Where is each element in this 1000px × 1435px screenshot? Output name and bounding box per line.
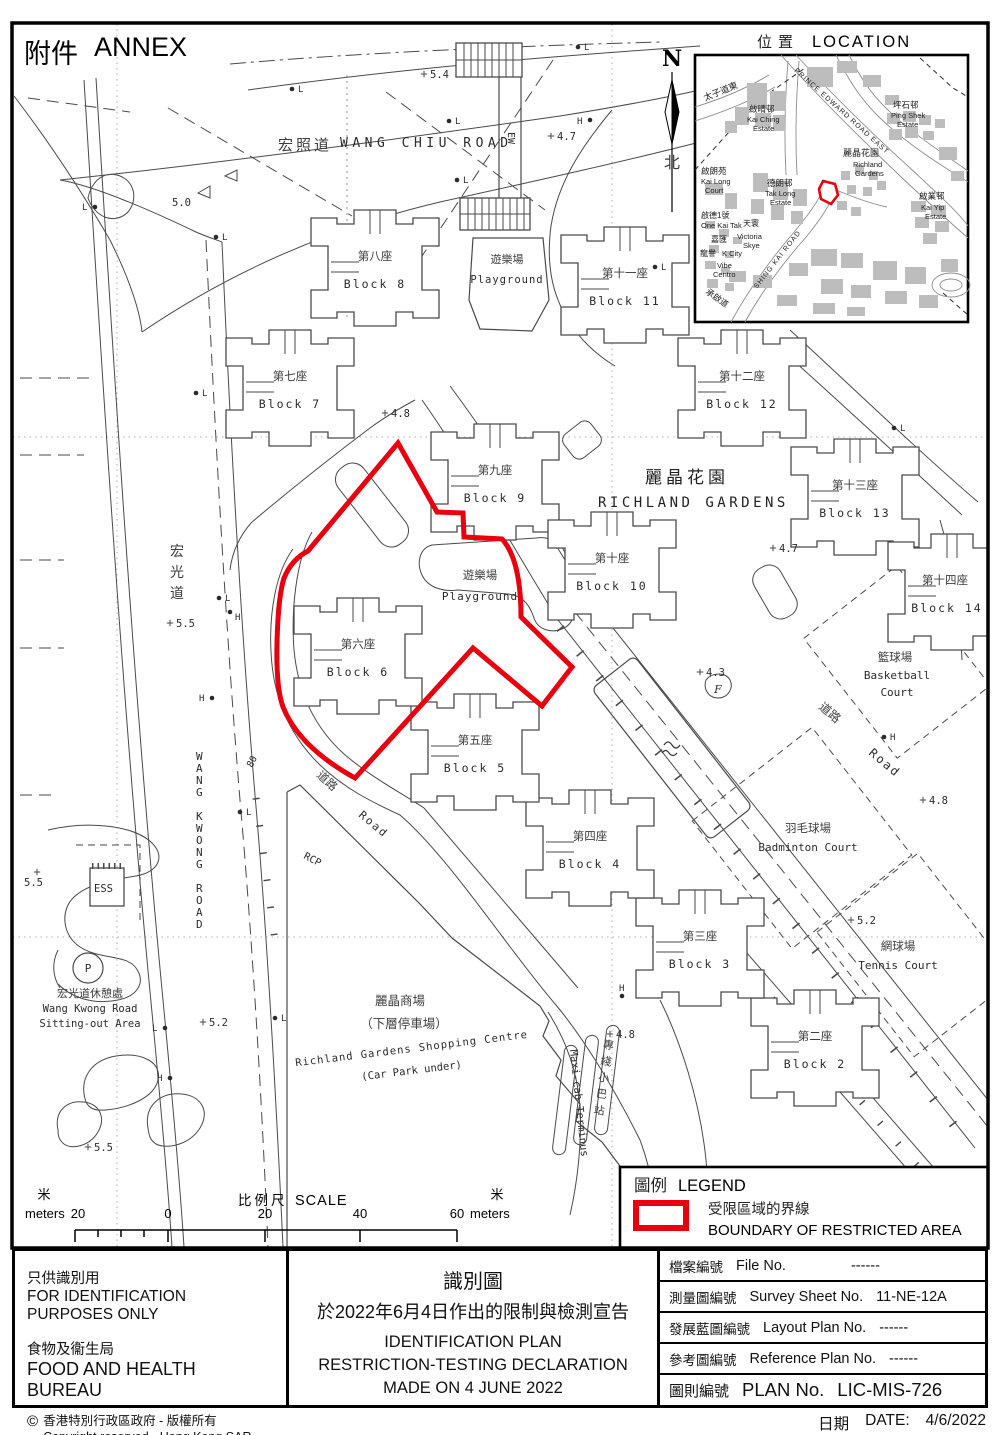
plan-title-en: IDENTIFICATION PLAN xyxy=(289,1333,657,1352)
plan-subtitle-en: RESTRICTION-TESTING DECLARATION xyxy=(289,1356,657,1375)
block-8-label-en: Block 8 xyxy=(344,277,406,291)
row-label-en: PLAN No. xyxy=(742,1379,824,1401)
plan-title-zh: 識別圖 xyxy=(289,1265,657,1294)
svg-text:L: L xyxy=(455,117,460,127)
svg-text:L: L xyxy=(584,43,589,53)
block-11-label-en: Block 11 xyxy=(589,294,660,308)
inset-label: 天寰 xyxy=(743,218,759,228)
date-value: 4/6/2022 xyxy=(926,1412,986,1434)
scale-meters-left: meters xyxy=(25,1206,65,1221)
svg-text:H: H xyxy=(235,613,240,623)
inset-label: Centro xyxy=(713,270,736,279)
badminton-label-en: Badminton Court xyxy=(758,841,857,854)
block-13-label-en: Block 13 xyxy=(819,506,890,520)
spot-height: 5.0 xyxy=(172,197,191,209)
for-identification-en: FOR IDENTIFICATION PURPOSES ONLY xyxy=(27,1288,274,1324)
spot-height: 5.2 xyxy=(209,1017,228,1029)
spot-height: 4.8 xyxy=(391,408,410,420)
row-value: 11-NE-12A xyxy=(876,1289,947,1305)
legend: 圖例 LEGEND 受限區域的界線 BOUNDARY OF RESTRICTED… xyxy=(620,1167,988,1248)
row-label-en: File No. xyxy=(736,1258,786,1274)
inset-title-en: LOCATION xyxy=(812,33,911,51)
scale-meters-right: meters xyxy=(470,1206,510,1221)
svg-text:H: H xyxy=(577,117,582,127)
for-identification-zh: 只供識別用 xyxy=(27,1267,274,1288)
block-13-label-zh: 第十三座 xyxy=(832,478,878,492)
block-10-label-zh: 第十座 xyxy=(595,551,630,565)
block-11-label-zh: 第十一座 xyxy=(602,266,648,280)
tennis-label-en: Tennis Court xyxy=(858,959,937,972)
survey-map: 5.4 4.7 5.0 4.8 4.7 4.3 4.8 5.5 5.5 5.2 … xyxy=(0,0,1000,1435)
basketball-label-zh: 籃球場 xyxy=(878,650,913,664)
scale-bar-ruler xyxy=(75,1230,457,1242)
playground-north-label-en: Playground xyxy=(470,274,543,286)
wang-chiu-road-label-en: WANG CHIU ROAD xyxy=(340,136,513,151)
estate-name-zh: 麗晶花園 xyxy=(645,468,729,487)
block-4-label-zh: 第四座 xyxy=(573,829,608,843)
copyright-en: Copyright reserved - Hong Kong SAR Gover… xyxy=(43,1430,251,1435)
plan-subtitle-zh: 於2022年6月4日作出的限制與檢測宣告 xyxy=(289,1298,657,1324)
block-12-label-en: Block 12 xyxy=(706,397,777,411)
f-label: F xyxy=(713,683,722,696)
annex-title-zh: 附件 xyxy=(24,32,78,71)
inset-label: Richland xyxy=(853,160,882,169)
svg-text:L: L xyxy=(225,594,230,604)
inset-label: Estate xyxy=(753,124,774,133)
inset-label: Kai Yip xyxy=(921,203,944,212)
svg-text:L: L xyxy=(298,85,303,95)
scale-tick-label: 0 xyxy=(164,1206,171,1221)
block-3-label-en: Block 3 xyxy=(669,957,731,971)
block-6-label-en: Block 6 xyxy=(327,665,389,679)
svg-text:L: L xyxy=(661,263,666,273)
parking-label: P xyxy=(85,962,92,975)
inset-label: Tak Long xyxy=(765,189,795,198)
sitting-out-area xyxy=(48,825,204,1147)
playground-north-label-zh: 遊樂場 xyxy=(491,252,524,266)
bureau-name-zh: 食物及衞生局 xyxy=(27,1338,274,1359)
badminton-label-zh: 羽毛球場 xyxy=(785,821,831,835)
row-label-zh: 檔案編號 xyxy=(669,1256,723,1276)
svg-text:L: L xyxy=(281,1014,286,1024)
spot-height: 4.3 xyxy=(706,667,725,679)
row-value: LIC-MIS-726 xyxy=(837,1379,942,1401)
svg-text:L: L xyxy=(82,203,87,213)
north-zh-label: 北 xyxy=(664,154,680,172)
location-inset: 位置 LOCATION xyxy=(695,33,970,322)
spot-height: 4.7 xyxy=(779,543,798,555)
rcp-label: RCP xyxy=(302,851,323,869)
inset-label: Court xyxy=(705,186,724,195)
scale-m-zh-right: 米 xyxy=(490,1187,503,1202)
chainage-label: 80 xyxy=(245,754,260,770)
playground-label-zh: 遊樂場 xyxy=(463,568,498,582)
block-4-label-en: Block 4 xyxy=(559,857,621,871)
footbridge-ew-label: EW xyxy=(505,132,516,145)
row-label-zh: 圖則編號 xyxy=(669,1380,729,1401)
inset-label: 嘉匯 xyxy=(711,234,727,244)
tennis-label-zh: 網球場 xyxy=(881,939,916,953)
spot-height: 5.4 xyxy=(430,69,449,81)
inset-label: Skye xyxy=(743,241,760,250)
ess-label: ESS xyxy=(94,883,113,895)
identification-plan-page: 5.4 4.7 5.0 4.8 4.7 4.3 4.8 5.5 5.5 5.2 … xyxy=(0,0,1000,1435)
layout-plan-row: 發展藍圖編號 Layout Plan No. ------ xyxy=(660,1313,985,1344)
inset-label: 啟朗苑 xyxy=(701,166,727,176)
block-2-label-en: Block 2 xyxy=(784,1057,846,1071)
inset-label: 啟晴邨 xyxy=(749,104,775,114)
shopping-carpark-label-zh: （下層停車場） xyxy=(360,1016,448,1031)
block-9-label-zh: 第九座 xyxy=(478,463,513,477)
block-12-label-zh: 第十二座 xyxy=(719,369,765,383)
inset-label: Victoria xyxy=(737,232,763,241)
basketball-label-en: Court xyxy=(880,686,913,699)
shopping-centre-label-zh: 麗晶商場 xyxy=(375,993,425,1008)
inset-label: Gardens xyxy=(855,169,884,178)
date-label-zh: 日期 xyxy=(818,1412,849,1434)
spot-height: 5.5 xyxy=(24,877,43,889)
road-label-zh: 道路 xyxy=(816,699,844,726)
row-label-en: Survey Sheet No. xyxy=(750,1289,864,1305)
legend-item-en: BOUNDARY OF RESTRICTED AREA xyxy=(708,1222,962,1239)
svg-text:H: H xyxy=(199,694,204,704)
file-no-row: 檔案編號 File No. ------ xyxy=(660,1251,985,1282)
svg-text:L: L xyxy=(222,233,227,243)
copyright-zh: 香港特別行政區政府 - 版權所有 xyxy=(43,1414,217,1428)
wang-chiu-road-label-zh: 宏照道 xyxy=(278,137,332,154)
svg-text:H: H xyxy=(619,984,624,994)
block-10-label-en: Block 10 xyxy=(576,579,647,593)
annex-title: 附件 ANNEX xyxy=(24,32,187,71)
row-label-zh: 測量圖編號 xyxy=(669,1287,737,1307)
identification-note-panel: 只供識別用 FOR IDENTIFICATION PURPOSES ONLY 食… xyxy=(12,1248,289,1408)
inset-title-zh: 位置 xyxy=(757,34,799,51)
sitting-out-label-zh: 宏光道休憩處 xyxy=(57,986,123,1000)
shopping-carpark-label-en: (Car Park under) xyxy=(361,1059,463,1083)
estate-name-en: RICHLAND GARDENS xyxy=(598,495,789,511)
inset-label: 啟德1號 xyxy=(701,210,729,220)
block-7-label-zh: 第七座 xyxy=(273,369,308,383)
scale-tick-label: 20 xyxy=(71,1206,85,1221)
inset-label: Ping Shek xyxy=(891,111,925,120)
spot-height: 4.7 xyxy=(557,131,576,143)
row-label-zh: 參考圖編號 xyxy=(669,1349,737,1369)
maxicab-label-en: Maxi-cab Terminus xyxy=(567,1049,590,1157)
sitting-out-label-en: Sitting-out Area xyxy=(39,1018,140,1030)
date-label-en: DATE: xyxy=(865,1412,910,1434)
svg-text:H: H xyxy=(157,1074,162,1084)
bureau-name-en: FOOD AND HEALTH BUREAU xyxy=(27,1359,274,1401)
inset-label: Estate xyxy=(897,120,918,129)
copyright-icon: © xyxy=(27,1413,38,1430)
legend-item-zh: 受限區域的界線 xyxy=(708,1201,810,1218)
north-arrow: N 北 xyxy=(662,46,682,212)
block-5-label-en: Block 5 xyxy=(444,761,506,775)
inset-label: One Kai Tak xyxy=(701,221,742,230)
inset-label: 坪石邨 xyxy=(893,100,919,110)
sitting-out-label-en: Wang Kwong Road xyxy=(43,1003,138,1015)
shopping-centre-label-en: Richland Gardens Shopping Centre xyxy=(295,1029,529,1069)
plan-date-en: MADE ON 4 JUNE 2022 xyxy=(289,1379,657,1398)
block-6-label-zh: 第六座 xyxy=(341,637,376,651)
scale-label-en: SCALE xyxy=(295,1193,348,1209)
block-5-label-zh: 第五座 xyxy=(458,733,493,747)
block-2-label-zh: 第二座 xyxy=(798,1029,833,1043)
spot-height: 4.8 xyxy=(616,1029,635,1041)
row-label-en: Layout Plan No. xyxy=(763,1320,866,1336)
north-n-label: N xyxy=(662,46,682,72)
block-3-label-zh: 第三座 xyxy=(683,929,718,943)
inset-label: 啟業邨 xyxy=(919,191,945,201)
row-value: ------ xyxy=(879,1320,908,1336)
svg-text:L: L xyxy=(152,1024,157,1034)
spot-height: 5.5 xyxy=(94,1142,113,1154)
scale-tick-label: 60 xyxy=(450,1206,464,1221)
road-label-en: Road xyxy=(866,746,903,780)
inset-label: 龍譽 xyxy=(700,248,716,258)
block-14-label-zh: 第十四座 xyxy=(922,573,968,587)
inset-site-marker xyxy=(819,181,838,204)
basketball-label-en: Basketball xyxy=(864,669,930,682)
inset-label: Estate xyxy=(770,198,791,207)
playground-label-en: Playground xyxy=(442,590,518,603)
wang-kwong-road-label-zh: 宏光道 xyxy=(170,543,184,601)
svg-text:L: L xyxy=(202,389,207,399)
row-value: ------ xyxy=(889,1351,918,1367)
date-line: 日期 DATE: 4/6/2022 xyxy=(818,1412,986,1434)
plan-title-panel: 識別圖 於2022年6月4日作出的限制與檢測宣告 IDENTIFICATION … xyxy=(286,1248,660,1408)
inset-label: 麗晶花園 xyxy=(843,147,879,158)
road-label-en: Road xyxy=(356,808,391,840)
block-8-label-zh: 第八座 xyxy=(358,249,393,263)
maxicab-label-zh: 專綫小巴站 xyxy=(593,1038,615,1118)
annex-title-en: ANNEX xyxy=(94,32,187,71)
inset-label: Estate xyxy=(925,212,946,221)
row-value: ------ xyxy=(851,1258,880,1274)
plan-reference-panel: 檔案編號 File No. ------ 測量圖編號 Survey Sheet … xyxy=(657,1248,988,1408)
swimmer-icon xyxy=(662,742,680,756)
svg-text:L: L xyxy=(246,808,251,818)
scale-tick-label: 40 xyxy=(353,1206,367,1221)
inset-label: Kai Ching xyxy=(747,115,780,124)
legend-title-zh: 圖例 xyxy=(634,1176,667,1195)
block-7-label-en: Block 7 xyxy=(259,397,321,411)
legend-title-en: LEGEND xyxy=(678,1177,746,1195)
plan-no-row: 圖則編號 PLAN No. LIC-MIS-726 xyxy=(660,1375,985,1405)
scale-tick-label: 20 xyxy=(258,1206,272,1221)
svg-text:H: H xyxy=(890,733,895,743)
inset-label: 德朗邨 xyxy=(767,178,793,188)
copyright: © 香港特別行政區政府 - 版權所有 Copyright reserved - … xyxy=(27,1413,274,1435)
row-label-en: Reference Plan No. xyxy=(750,1351,877,1367)
scale-m-zh-left: 米 xyxy=(37,1187,50,1202)
block-9-label-en: Block 9 xyxy=(464,491,526,505)
reference-plan-row: 參考圖編號 Reference Plan No. ------ xyxy=(660,1344,985,1375)
wang-kwong-road-label-en: WANG KWONG ROAD xyxy=(196,750,203,931)
block-14-label-en: Block 14 xyxy=(911,601,982,615)
spot-height: 5.2 xyxy=(857,915,876,927)
survey-sheet-row: 測量圖編號 Survey Sheet No. 11-NE-12A xyxy=(660,1282,985,1313)
svg-text:L: L xyxy=(463,176,468,186)
inset-label: K City xyxy=(722,249,742,258)
inset-label: Kai Long xyxy=(701,177,731,186)
row-label-zh: 發展藍圖編號 xyxy=(669,1318,750,1338)
spot-height: 5.5 xyxy=(176,618,195,630)
svg-text:L: L xyxy=(900,424,905,434)
spot-height: 4.8 xyxy=(929,795,948,807)
inset-label: Vibe xyxy=(717,261,732,270)
